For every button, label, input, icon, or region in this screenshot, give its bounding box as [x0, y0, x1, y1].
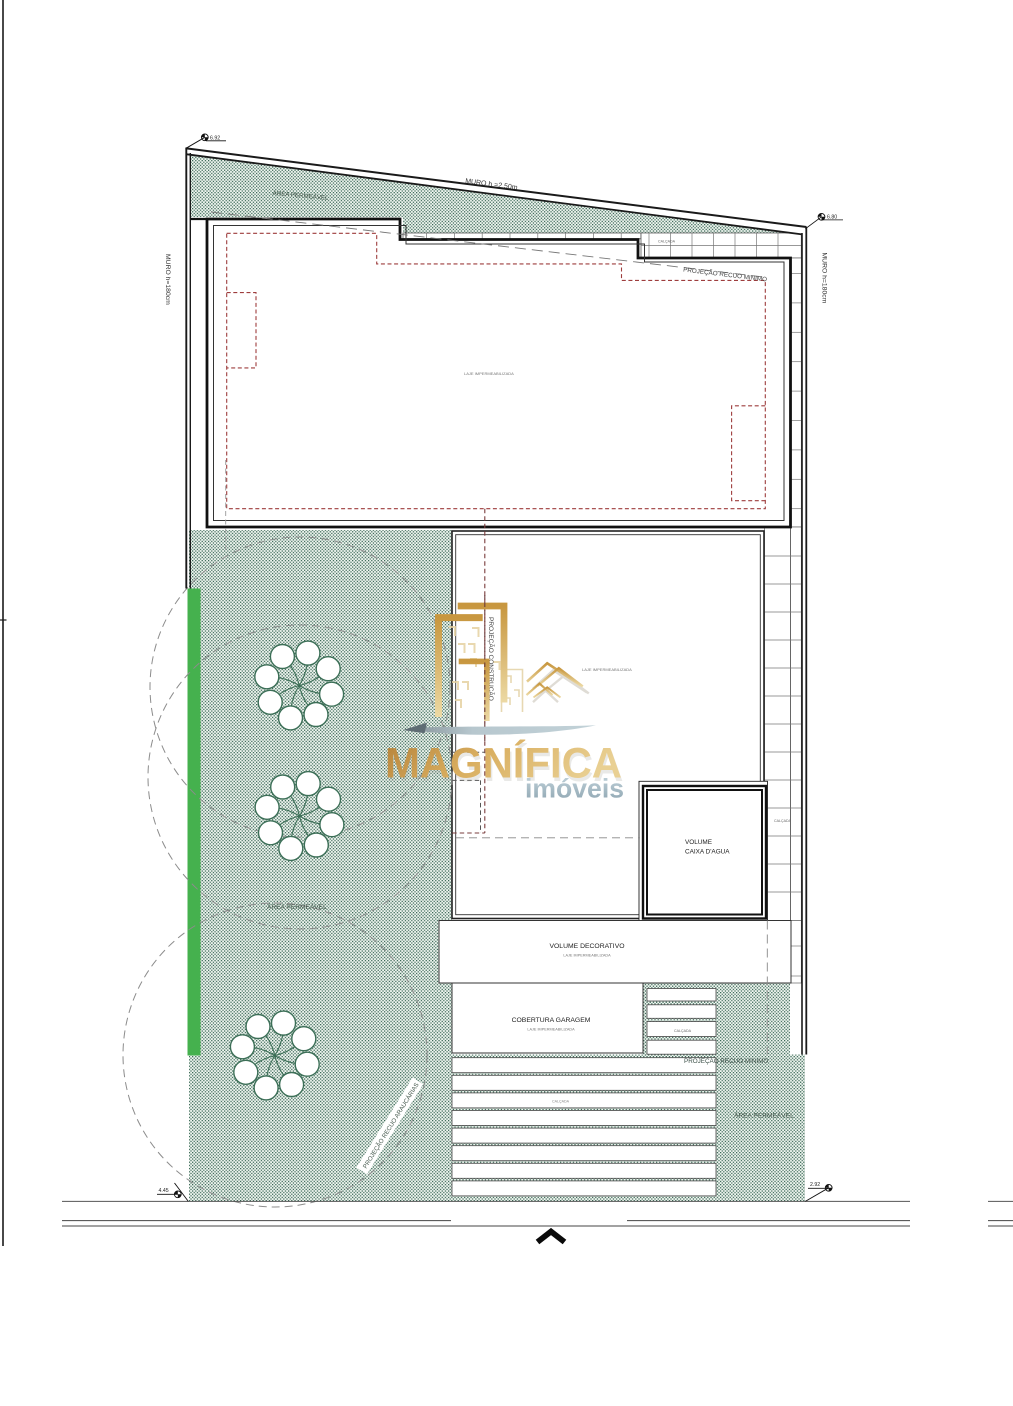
svg-text:LAJE IMPERMEABILIZADA: LAJE IMPERMEABILIZADA [563, 954, 611, 958]
svg-text:6.92: 6.92 [210, 136, 220, 142]
svg-text:COBERTURA GARAGEM: COBERTURA GARAGEM [512, 1017, 591, 1024]
svg-text:CALÇADA: CALÇADA [658, 240, 676, 244]
svg-text:4.45: 4.45 [159, 1188, 169, 1194]
svg-text:imóveis: imóveis [525, 774, 624, 804]
svg-text:MURO h=180cm: MURO h=180cm [164, 254, 171, 305]
svg-text:LAJE IMPERMEABILIZADA: LAJE IMPERMEABILIZADA [527, 1028, 575, 1032]
svg-text:2.92: 2.92 [810, 1182, 820, 1188]
svg-text:LAJE IMPERMEABILIZADA: LAJE IMPERMEABILIZADA [582, 667, 632, 672]
svg-text:6.80: 6.80 [827, 215, 837, 221]
svg-text:MURO h=180cm: MURO h=180cm [821, 253, 828, 304]
svg-text:PROJEÇÃO RECUO MINIMO: PROJEÇÃO RECUO MINIMO [684, 1056, 768, 1065]
svg-text:ÁREA PERMEÁVEL: ÁREA PERMEÁVEL [734, 1111, 794, 1120]
svg-text:CALÇADA: CALÇADA [774, 819, 792, 823]
svg-text:ÁREA PERMEÁVEL: ÁREA PERMEÁVEL [267, 902, 327, 911]
svg-text:CAIXA D'AGUA: CAIXA D'AGUA [685, 849, 730, 856]
svg-text:CALÇADA: CALÇADA [552, 1100, 570, 1104]
svg-text:LAJE IMPERMEABILIZADA: LAJE IMPERMEABILIZADA [464, 371, 514, 376]
svg-text:VOLUME DECORATIVO: VOLUME DECORATIVO [549, 943, 624, 950]
svg-text:VOLUME: VOLUME [685, 839, 712, 846]
svg-text:CALÇADA: CALÇADA [674, 1029, 692, 1033]
